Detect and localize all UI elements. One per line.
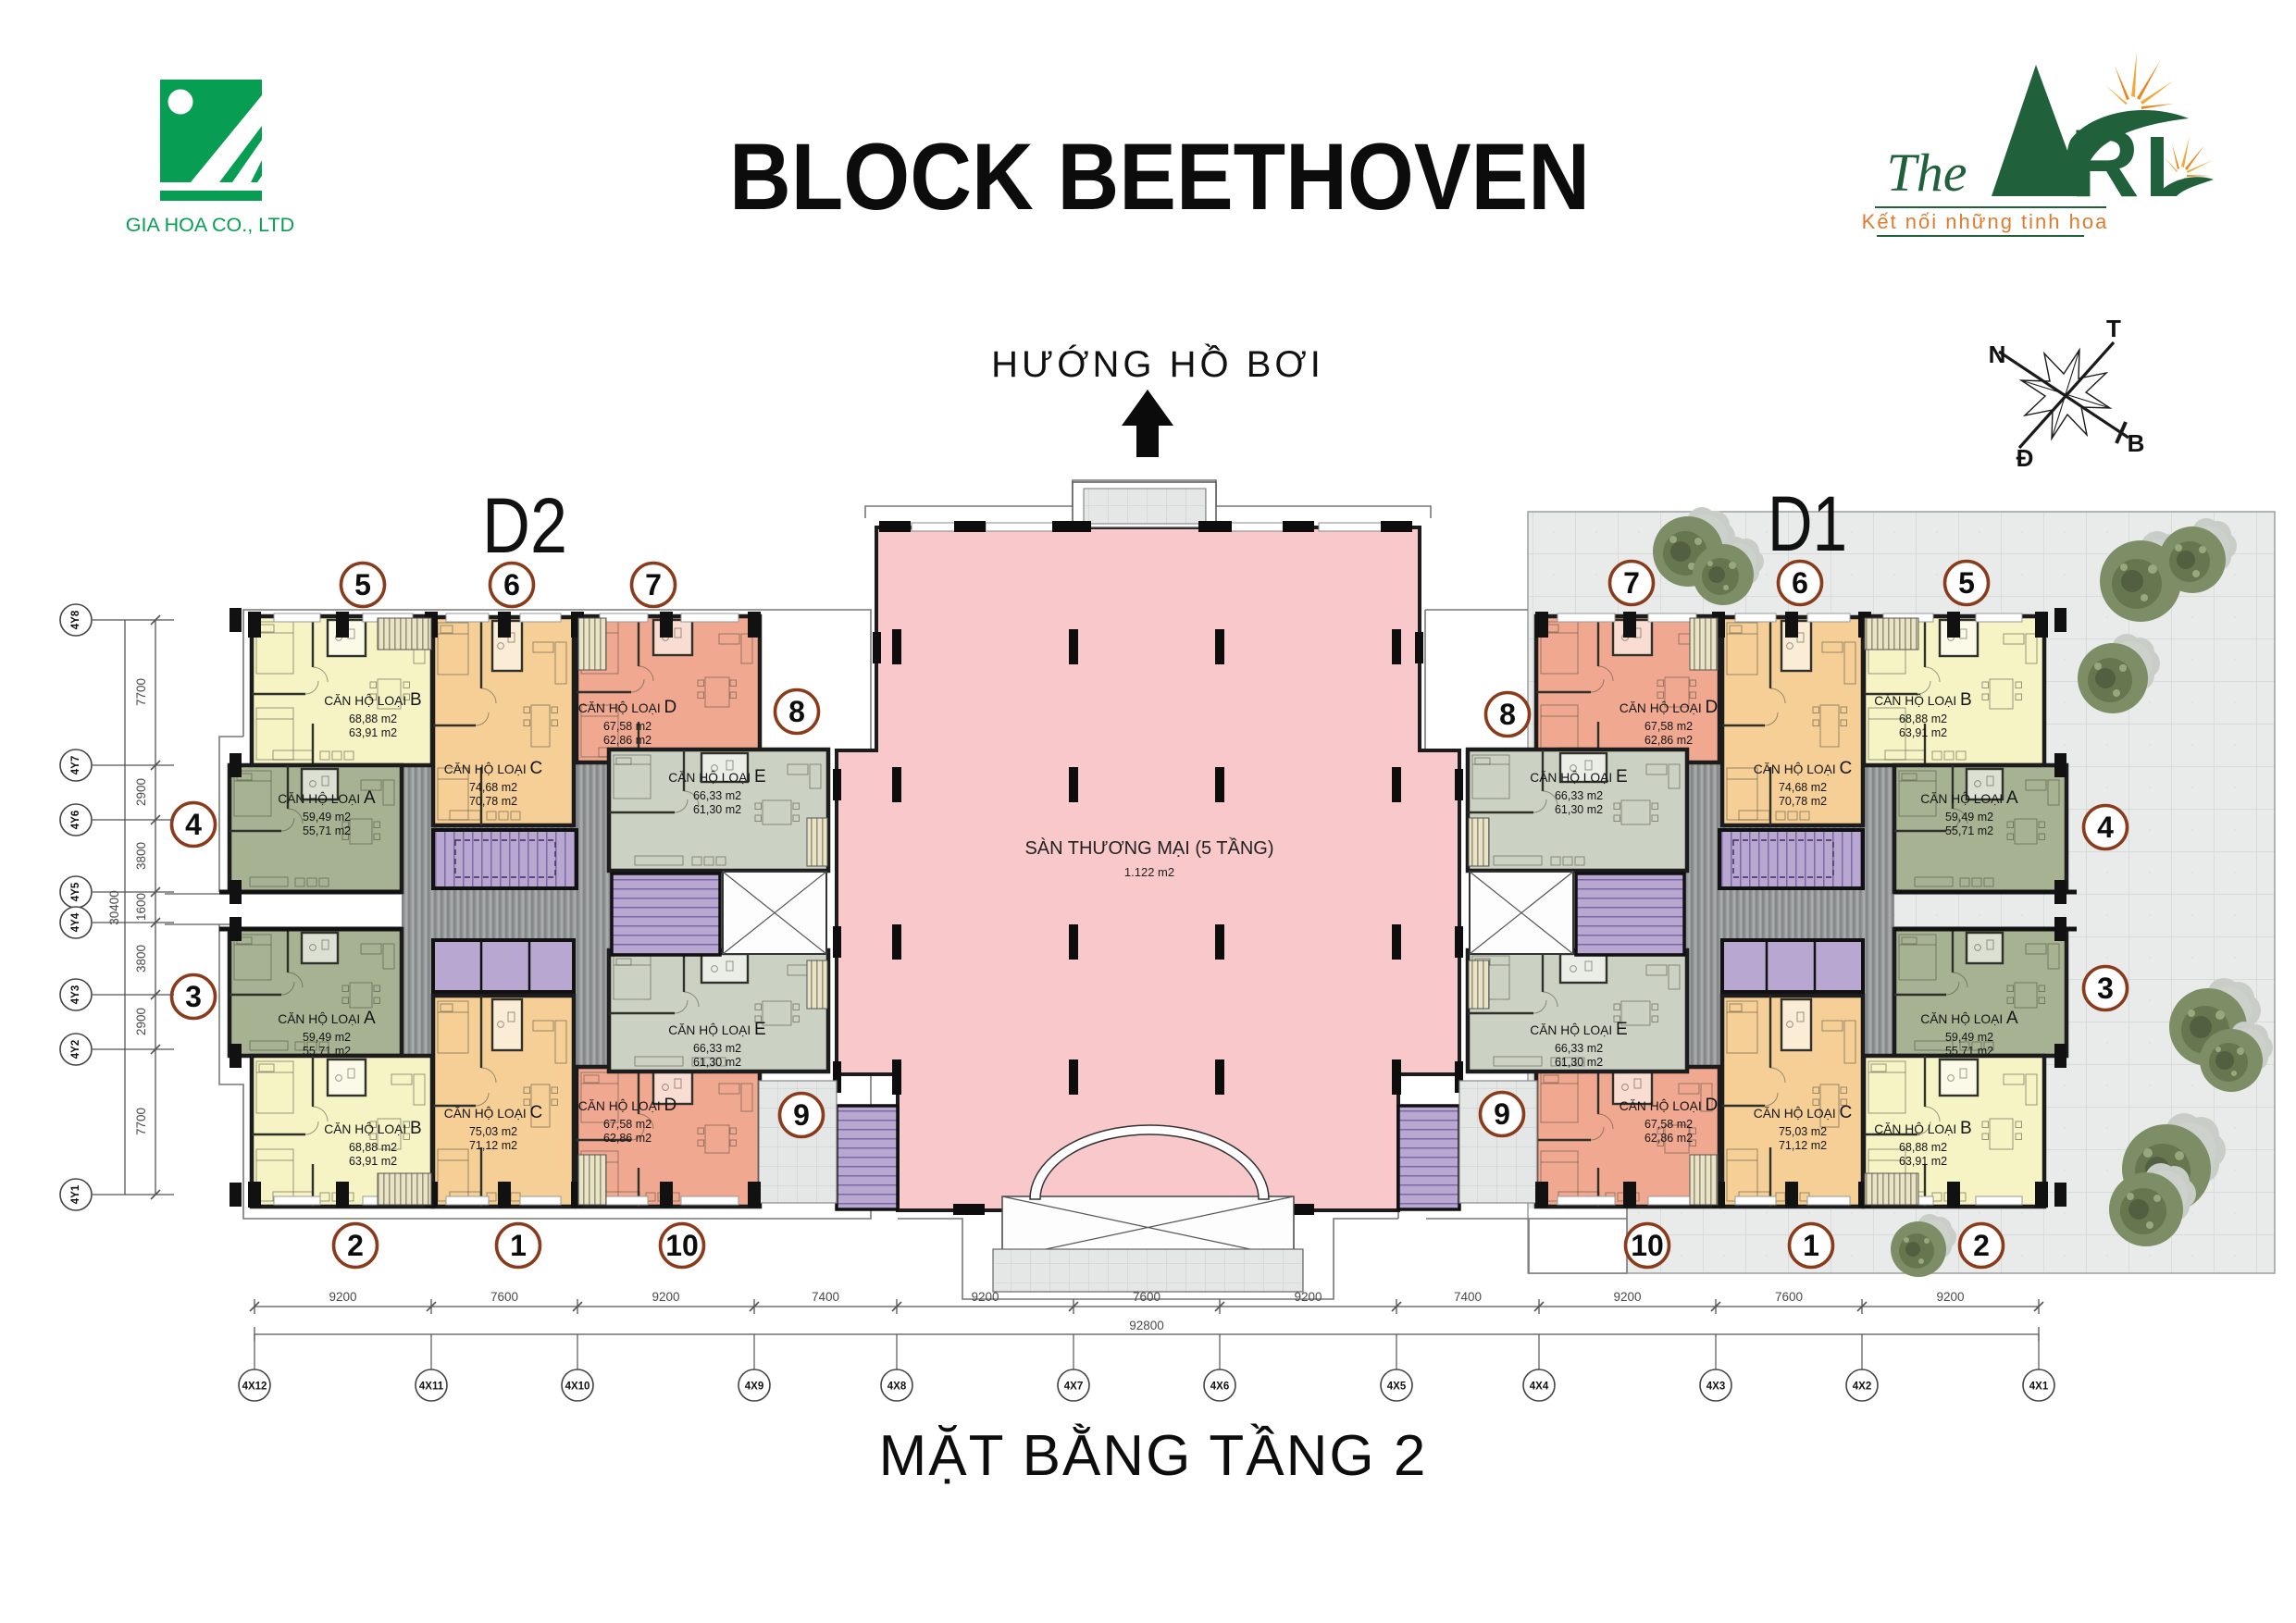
- svg-text:74,68 m2: 74,68 m2: [1779, 781, 1827, 794]
- svg-text:66,33 m2: 66,33 m2: [1555, 1042, 1603, 1055]
- svg-text:9: 9: [1494, 1097, 1510, 1131]
- svg-text:2: 2: [1973, 1229, 1990, 1262]
- svg-text:CĂN HỘ LOẠI B: CĂN HỘ LOẠI B: [324, 1119, 421, 1138]
- svg-text:71,12 m2: 71,12 m2: [469, 1139, 517, 1152]
- svg-text:4X9: 4X9: [745, 1381, 763, 1393]
- svg-text:7: 7: [1623, 566, 1640, 600]
- svg-text:55,71 m2: 55,71 m2: [303, 824, 351, 837]
- svg-text:CĂN HỘ LOẠI D: CĂN HỘ LOẠI D: [1620, 1096, 1719, 1115]
- svg-text:9200: 9200: [971, 1290, 999, 1304]
- svg-text:68,88 m2: 68,88 m2: [1899, 712, 1947, 725]
- svg-text:SÀN THƯƠNG MẠI (5 TẦNG): SÀN THƯƠNG MẠI (5 TẦNG): [1024, 837, 1273, 859]
- svg-text:CĂN HỘ LOẠI D: CĂN HỘ LOẠI D: [578, 1096, 677, 1115]
- svg-text:3800: 3800: [134, 945, 148, 973]
- svg-text:6: 6: [503, 568, 520, 601]
- svg-text:CĂN HỘ LOẠI A: CĂN HỘ LOẠI A: [1920, 1009, 2018, 1028]
- svg-text:4X8: 4X8: [887, 1381, 907, 1393]
- svg-text:63,91 m2: 63,91 m2: [1899, 726, 1947, 739]
- svg-text:59,49 m2: 59,49 m2: [303, 1031, 351, 1044]
- svg-text:61,30 m2: 61,30 m2: [1555, 803, 1603, 816]
- svg-text:61,30 m2: 61,30 m2: [693, 803, 741, 816]
- svg-text:B: B: [2128, 429, 2145, 457]
- svg-text:CĂN HỘ LOẠI B: CĂN HỘ LOẠI B: [1874, 690, 1971, 710]
- svg-text:4Y1: 4Y1: [70, 1184, 81, 1204]
- svg-text:N: N: [1989, 341, 2006, 368]
- svg-text:4X3: 4X3: [1706, 1381, 1725, 1393]
- svg-text:62,86 m2: 62,86 m2: [1644, 1132, 1693, 1145]
- svg-text:70,78 m2: 70,78 m2: [469, 795, 517, 808]
- svg-text:4Y3: 4Y3: [70, 985, 81, 1004]
- svg-text:4X5: 4X5: [1387, 1381, 1407, 1393]
- svg-text:66,33 m2: 66,33 m2: [1555, 789, 1603, 802]
- svg-text:5: 5: [1958, 566, 1975, 600]
- svg-text:7400: 7400: [1454, 1290, 1482, 1304]
- svg-text:67,58 m2: 67,58 m2: [1644, 720, 1693, 733]
- svg-text:CĂN HỘ LOẠI C: CĂN HỘ LOẠI C: [444, 759, 543, 778]
- svg-text:75,03 m2: 75,03 m2: [1779, 1125, 1827, 1138]
- svg-text:D2: D2: [482, 482, 567, 569]
- svg-text:70,78 m2: 70,78 m2: [1779, 795, 1827, 808]
- svg-text:68,88 m2: 68,88 m2: [349, 712, 397, 725]
- svg-text:3800: 3800: [134, 842, 148, 870]
- svg-text:55,71 m2: 55,71 m2: [1945, 824, 1993, 837]
- svg-text:CĂN HỘ LOẠI B: CĂN HỘ LOẠI B: [1874, 1119, 1971, 1138]
- svg-text:HƯỚNG HỒ BƠI: HƯỚNG HỒ BƠI: [991, 342, 1324, 385]
- svg-text:CĂN HỘ LOẠI C: CĂN HỘ LOẠI C: [1754, 1103, 1853, 1122]
- svg-text:8: 8: [788, 695, 805, 728]
- svg-text:4Y4: 4Y4: [70, 912, 81, 932]
- svg-text:10: 10: [665, 1229, 699, 1262]
- svg-text:4X1: 4X1: [2029, 1381, 2049, 1393]
- svg-text:4X6: 4X6: [1210, 1381, 1229, 1393]
- svg-text:61,30 m2: 61,30 m2: [1555, 1056, 1603, 1069]
- svg-text:3: 3: [185, 980, 202, 1013]
- svg-text:CĂN HỘ LOẠI A: CĂN HỘ LOẠI A: [278, 788, 376, 808]
- svg-text:CĂN HỘ LOẠI D: CĂN HỘ LOẠI D: [1620, 698, 1719, 717]
- svg-text:Đ: Đ: [2017, 444, 2034, 472]
- svg-text:Kết nối những tinh hoa: Kết nối những tinh hoa: [1862, 210, 2109, 233]
- svg-text:D1: D1: [1768, 480, 1847, 567]
- svg-text:4X11: 4X11: [419, 1381, 444, 1393]
- svg-text:BLOCK BEETHOVEN: BLOCK BEETHOVEN: [729, 124, 1590, 229]
- svg-text:10: 10: [1631, 1229, 1664, 1262]
- svg-text:68,88 m2: 68,88 m2: [1899, 1141, 1947, 1154]
- svg-text:T: T: [2106, 315, 2121, 342]
- svg-text:CĂN HỘ LOẠI E: CĂN HỘ LOẠI E: [668, 1020, 765, 1039]
- svg-text:68,88 m2: 68,88 m2: [349, 1141, 397, 1154]
- svg-text:The: The: [1887, 142, 1967, 203]
- svg-text:4X2: 4X2: [1853, 1381, 1871, 1393]
- svg-text:59,49 m2: 59,49 m2: [303, 811, 351, 824]
- svg-text:8: 8: [1499, 698, 1516, 731]
- svg-text:7600: 7600: [490, 1290, 518, 1304]
- svg-text:9200: 9200: [1294, 1290, 1322, 1304]
- svg-text:74,68 m2: 74,68 m2: [469, 781, 517, 794]
- svg-text:CĂN HỘ LOẠI C: CĂN HỘ LOẠI C: [1754, 759, 1853, 778]
- svg-text:3: 3: [2097, 972, 2114, 1005]
- svg-text:63,91 m2: 63,91 m2: [349, 1155, 397, 1168]
- svg-text:CĂN HỘ LOẠI C: CĂN HỘ LOẠI C: [444, 1103, 543, 1122]
- svg-text:4: 4: [185, 808, 202, 841]
- svg-text:62,86 m2: 62,86 m2: [603, 734, 652, 747]
- svg-text:9: 9: [793, 1098, 810, 1132]
- svg-text:4Y8: 4Y8: [70, 610, 81, 629]
- svg-text:2: 2: [347, 1229, 364, 1262]
- svg-text:75,03 m2: 75,03 m2: [469, 1125, 517, 1138]
- svg-text:67,58 m2: 67,58 m2: [1644, 1118, 1693, 1131]
- svg-text:CĂN HỘ LOẠI D: CĂN HỘ LOẠI D: [578, 698, 677, 717]
- svg-text:GIA HOA CO., LTD: GIA HOA CO., LTD: [126, 214, 294, 236]
- svg-text:66,33 m2: 66,33 m2: [693, 1042, 741, 1055]
- svg-text:4: 4: [2097, 811, 2114, 844]
- svg-text:7600: 7600: [1133, 1290, 1160, 1304]
- svg-text:59,49 m2: 59,49 m2: [1945, 811, 1993, 824]
- svg-text:CĂN HỘ LOẠI E: CĂN HỘ LOẠI E: [1530, 1020, 1627, 1039]
- svg-text:59,49 m2: 59,49 m2: [1945, 1031, 1993, 1044]
- svg-text:7400: 7400: [812, 1290, 839, 1304]
- svg-text:CĂN HỘ LOẠI B: CĂN HỘ LOẠI B: [324, 690, 421, 710]
- svg-text:5: 5: [354, 568, 371, 601]
- svg-text:7600: 7600: [1775, 1290, 1803, 1304]
- svg-text:67,58 m2: 67,58 m2: [603, 1118, 652, 1131]
- svg-text:CĂN HỘ LOẠI A: CĂN HỘ LOẠI A: [278, 1009, 376, 1028]
- svg-text:4X4: 4X4: [1530, 1381, 1549, 1393]
- svg-text:CĂN HỘ LOẠI E: CĂN HỘ LOẠI E: [668, 767, 765, 787]
- svg-text:7: 7: [645, 568, 662, 601]
- svg-text:9200: 9200: [329, 1290, 356, 1304]
- svg-text:1: 1: [510, 1229, 527, 1262]
- svg-text:R: R: [2069, 110, 2139, 217]
- svg-text:71,12 m2: 71,12 m2: [1779, 1139, 1827, 1152]
- svg-text:30400: 30400: [107, 890, 121, 925]
- svg-text:2900: 2900: [134, 1008, 148, 1035]
- svg-text:1: 1: [1803, 1229, 1819, 1262]
- svg-text:1600: 1600: [134, 893, 148, 921]
- svg-text:62,86 m2: 62,86 m2: [1644, 734, 1693, 747]
- svg-text:9200: 9200: [1613, 1290, 1641, 1304]
- svg-text:CĂN HỘ LOẠI E: CĂN HỘ LOẠI E: [1530, 767, 1627, 787]
- svg-text:7700: 7700: [134, 1108, 148, 1135]
- svg-text:4X12: 4X12: [242, 1381, 267, 1393]
- svg-text:63,91 m2: 63,91 m2: [349, 726, 397, 739]
- svg-text:66,33 m2: 66,33 m2: [693, 789, 741, 802]
- svg-text:62,86 m2: 62,86 m2: [603, 1132, 652, 1145]
- svg-text:MẶT BẰNG TẦNG 2: MẶT BẰNG TẦNG 2: [879, 1424, 1428, 1488]
- svg-text:4Y5: 4Y5: [70, 882, 81, 901]
- svg-text:67,58 m2: 67,58 m2: [603, 720, 652, 733]
- svg-text:7700: 7700: [134, 678, 148, 706]
- svg-text:4Y6: 4Y6: [70, 811, 81, 829]
- svg-text:92800: 92800: [1129, 1319, 1164, 1332]
- svg-text:9200: 9200: [1936, 1290, 1964, 1304]
- svg-text:4X10: 4X10: [565, 1381, 590, 1393]
- svg-text:4X7: 4X7: [1064, 1381, 1083, 1393]
- svg-text:1.122 m2: 1.122 m2: [1124, 865, 1174, 879]
- svg-text:4Y2: 4Y2: [70, 1040, 81, 1059]
- svg-text:9200: 9200: [652, 1290, 679, 1304]
- svg-text:63,91 m2: 63,91 m2: [1899, 1155, 1947, 1168]
- svg-text:61,30 m2: 61,30 m2: [693, 1056, 741, 1069]
- svg-text:2900: 2900: [134, 778, 148, 806]
- svg-text:4Y7: 4Y7: [70, 756, 81, 774]
- svg-text:6: 6: [1792, 566, 1808, 600]
- svg-text:CĂN HỘ LOẠI A: CĂN HỘ LOẠI A: [1920, 788, 2018, 808]
